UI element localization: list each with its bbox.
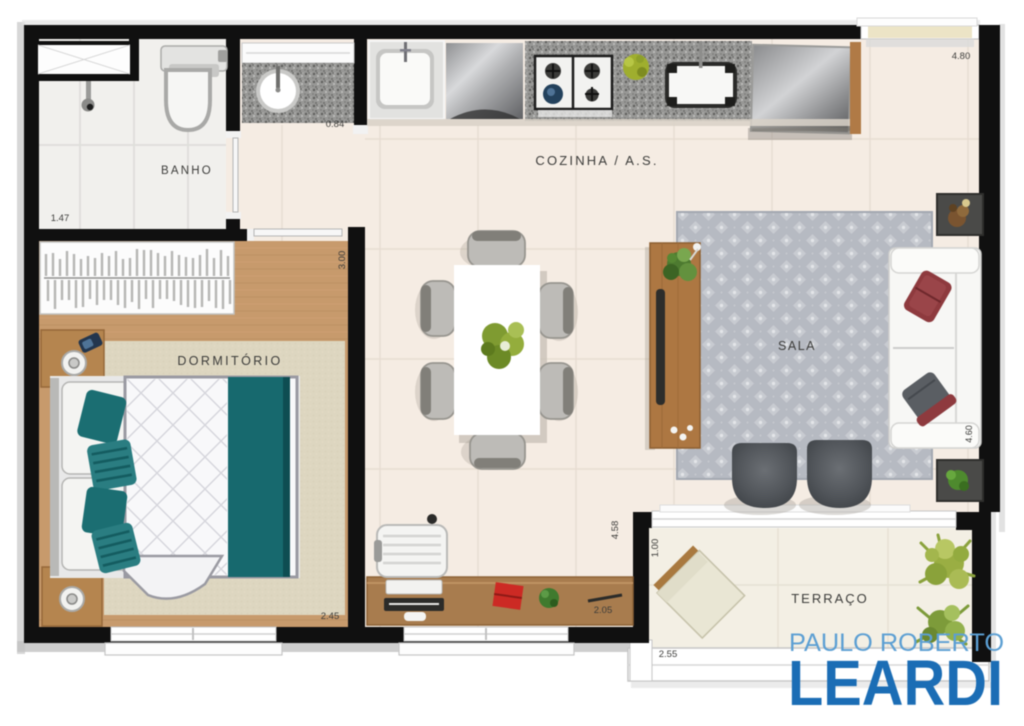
svg-text:LEARDI: LEARDI xyxy=(788,647,1003,719)
svg-text:1.47: 1.47 xyxy=(51,213,70,224)
svg-text:4.60: 4.60 xyxy=(964,425,974,443)
svg-text:SALA: SALA xyxy=(778,339,816,353)
svg-text:3.00: 3.00 xyxy=(337,251,348,270)
svg-text:1.00: 1.00 xyxy=(650,539,661,558)
svg-text:4.58: 4.58 xyxy=(610,521,621,540)
svg-text:TERRAÇO: TERRAÇO xyxy=(791,591,869,606)
svg-text:2.55: 2.55 xyxy=(659,649,678,660)
svg-text:DORMITÓRIO: DORMITÓRIO xyxy=(177,353,282,368)
svg-text:0.84: 0.84 xyxy=(326,119,345,130)
svg-text:BANHO: BANHO xyxy=(161,165,213,177)
svg-text:2.45: 2.45 xyxy=(321,611,340,622)
svg-text:COZINHA / A.S.: COZINHA / A.S. xyxy=(535,153,658,168)
svg-text:4.80: 4.80 xyxy=(952,51,971,62)
svg-text:2.05: 2.05 xyxy=(594,605,613,616)
